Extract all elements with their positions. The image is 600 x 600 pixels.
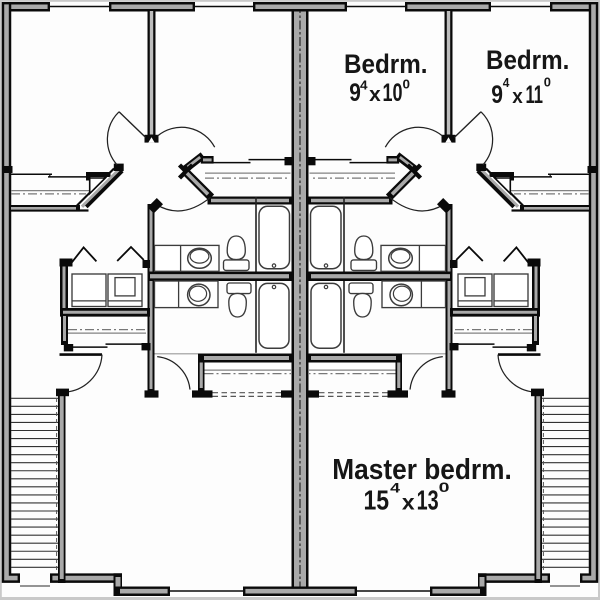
svg-text:x: x — [369, 84, 381, 106]
svg-text:0: 0 — [439, 480, 450, 495]
svg-text:0: 0 — [544, 75, 551, 90]
svg-text:13: 13 — [417, 485, 439, 516]
svg-text:0: 0 — [403, 77, 411, 92]
svg-text:4: 4 — [503, 75, 510, 90]
svg-text:Master bedrm.: Master bedrm. — [332, 454, 512, 486]
svg-text:9: 9 — [491, 81, 503, 109]
svg-text:4: 4 — [360, 78, 368, 93]
svg-text:x: x — [402, 492, 415, 515]
svg-text:11: 11 — [526, 81, 544, 109]
svg-text:x: x — [512, 86, 523, 108]
svg-text:Bedrm.: Bedrm. — [486, 45, 569, 75]
svg-text:15: 15 — [364, 485, 390, 516]
svg-text:4: 4 — [390, 481, 401, 496]
svg-text:10: 10 — [383, 79, 403, 107]
svg-text:Bedrm.: Bedrm. — [344, 49, 428, 79]
